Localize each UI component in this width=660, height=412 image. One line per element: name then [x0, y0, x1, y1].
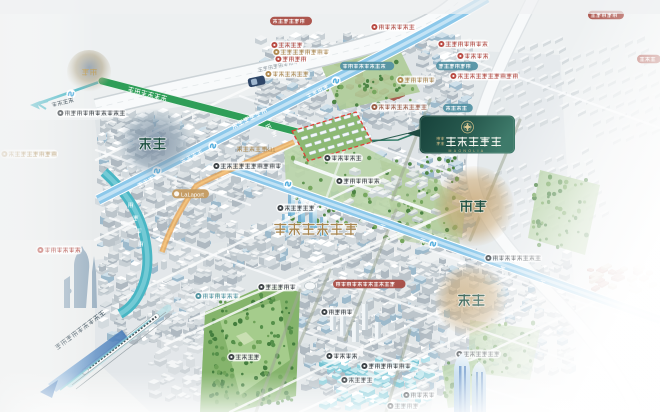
svg-text:LaLaport: LaLaport — [181, 192, 204, 198]
svg-text:K11: K11 — [266, 148, 275, 154]
